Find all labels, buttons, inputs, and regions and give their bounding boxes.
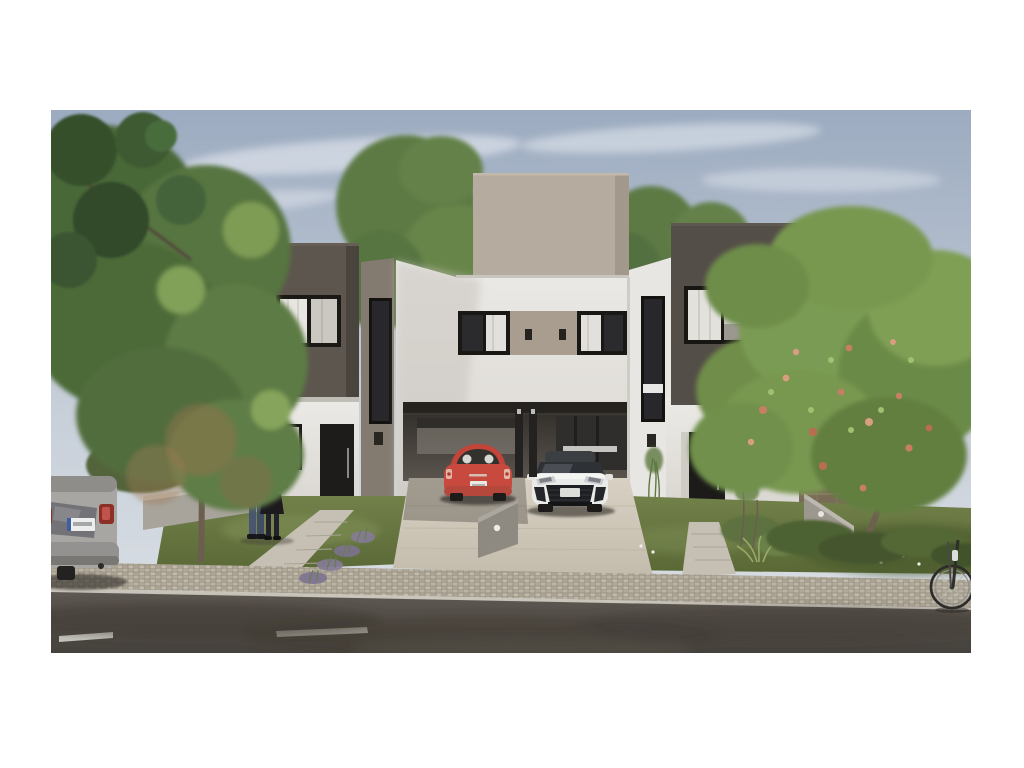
plate-euroband [67, 518, 71, 531]
render-canvas [51, 110, 971, 653]
maple-leaves [156, 175, 206, 225]
stair-tower-top-edge [473, 173, 629, 176]
post-number-plaque [517, 409, 521, 414]
carport-post [515, 403, 523, 477]
woman-leg [274, 514, 279, 536]
curtain-fold [698, 290, 700, 340]
divider-ground-light [494, 525, 500, 531]
rear-wheel [450, 493, 463, 501]
bicycle-head-tube [952, 550, 958, 561]
post-number-plaque [531, 409, 535, 414]
window-glass [604, 315, 623, 351]
window-curtain [486, 315, 506, 351]
chrome-trim [469, 474, 487, 477]
taillight-inner [505, 472, 509, 476]
window-band-panel [510, 311, 577, 355]
lavender [299, 572, 327, 584]
cloud [701, 168, 941, 192]
stair-tower-side-face [615, 173, 629, 279]
headrest [463, 455, 472, 464]
woman-shoe [273, 536, 281, 540]
glazing-mullion [596, 416, 599, 470]
window-curtain [311, 299, 337, 343]
party-wall-pillar [361, 258, 394, 530]
license-plate [560, 488, 580, 497]
woman-shoe [264, 536, 272, 540]
foliage-rust-tint [220, 456, 272, 508]
stair-window-glass [644, 299, 662, 419]
stair-tower [473, 173, 615, 279]
window-mullion [307, 299, 311, 343]
foliage-blob [399, 136, 483, 204]
front-wheel [587, 504, 602, 512]
front-lip [548, 502, 592, 506]
side-mirror [605, 474, 613, 480]
foliage-highlight [251, 390, 291, 430]
curtain-fold [321, 299, 323, 343]
foliage-blob [705, 244, 809, 328]
wall-sconce [525, 329, 532, 340]
bumper-lower [51, 556, 119, 565]
car-roof-shade [51, 476, 117, 492]
carport-post [529, 403, 537, 477]
foliage-rust-tint [126, 445, 186, 505]
stair-window-glass [372, 301, 389, 421]
left-upper-volume-side-face [346, 243, 359, 397]
foliage-blob [811, 397, 967, 513]
window-curtain [581, 315, 601, 351]
center-window-right [577, 311, 627, 355]
front-wheel [538, 504, 553, 512]
maple-leaves [145, 120, 177, 152]
lavender [334, 545, 360, 557]
exhaust-tip [98, 563, 104, 569]
rear-wheel [57, 566, 75, 580]
center-window-left [458, 311, 510, 355]
wall-sconce [559, 329, 566, 340]
planter-plant-leaves [645, 447, 663, 473]
window-glass [462, 315, 483, 351]
woman-leg [266, 514, 271, 536]
taillight-inner [102, 507, 110, 520]
plate-characters [73, 522, 92, 526]
page-background [0, 0, 1024, 768]
door-handle [347, 448, 349, 478]
curtain-fold [587, 315, 589, 351]
foliage-blob [689, 403, 793, 493]
architectural-render-photo [51, 110, 971, 653]
parapet-edge [456, 275, 629, 278]
wall-sconce [647, 434, 656, 447]
lavender [351, 531, 375, 543]
windshield-reflection [541, 464, 573, 474]
wall-sconce [374, 432, 383, 445]
curtain-fold [492, 315, 494, 351]
carport-rear-band [417, 418, 523, 428]
foliage-highlight [223, 202, 279, 258]
foliage-highlight [157, 266, 205, 314]
taillight-inner [447, 472, 451, 476]
man-shoe [247, 534, 257, 539]
headrest [485, 455, 494, 464]
stair-window-slot [643, 384, 663, 393]
taillight [51, 508, 52, 524]
ground-light [818, 511, 824, 517]
rear-wheel [493, 493, 506, 501]
grounds [51, 478, 971, 653]
